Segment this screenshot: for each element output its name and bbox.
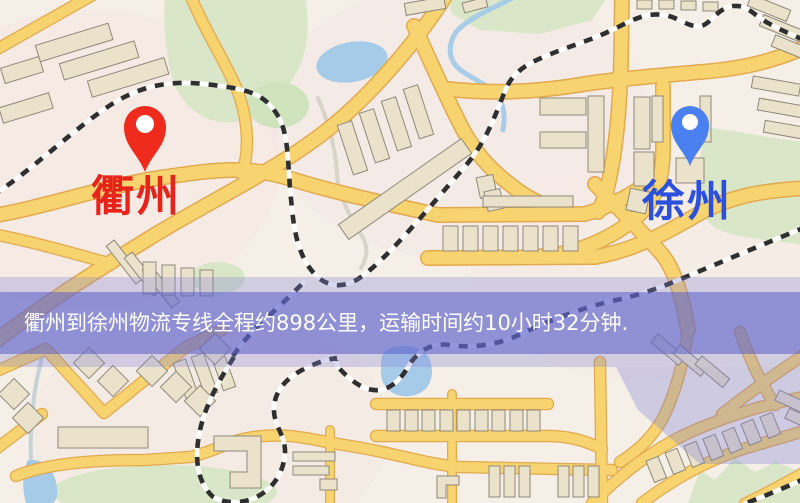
map-screenshot: 衢州 徐州 衢州到徐州物流专线全程约898公里，运输时间约10小时32分钟. — [0, 0, 800, 503]
route-info-banner: 衢州到徐州物流专线全程约898公里，运输时间约10小时32分钟. — [24, 310, 784, 336]
origin-city-label: 衢州 — [91, 176, 181, 219]
destination-city-label: 徐州 — [642, 181, 732, 224]
map-canvas[interactable] — [0, 0, 800, 503]
